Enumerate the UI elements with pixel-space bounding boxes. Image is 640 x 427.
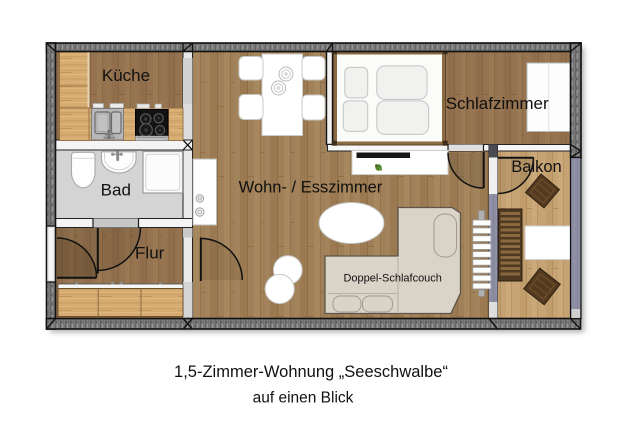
svg-text:Küche: Küche	[102, 66, 150, 85]
svg-text:auf einen Blick: auf einen Blick	[253, 390, 354, 407]
svg-text:Wohn- / Esszimmer: Wohn- / Esszimmer	[239, 179, 383, 197]
svg-text:1,5-Zimmer-Wohnung „Seeschwalb: 1,5-Zimmer-Wohnung „Seeschwalbe“	[174, 363, 448, 381]
svg-text:Schlafzimmer: Schlafzimmer	[446, 94, 549, 113]
svg-text:Bad: Bad	[101, 181, 131, 200]
svg-text:Doppel-Schlafcouch: Doppel-Schlafcouch	[343, 273, 441, 285]
svg-text:Flur: Flur	[135, 244, 165, 263]
svg-text:Balkon: Balkon	[511, 158, 561, 176]
